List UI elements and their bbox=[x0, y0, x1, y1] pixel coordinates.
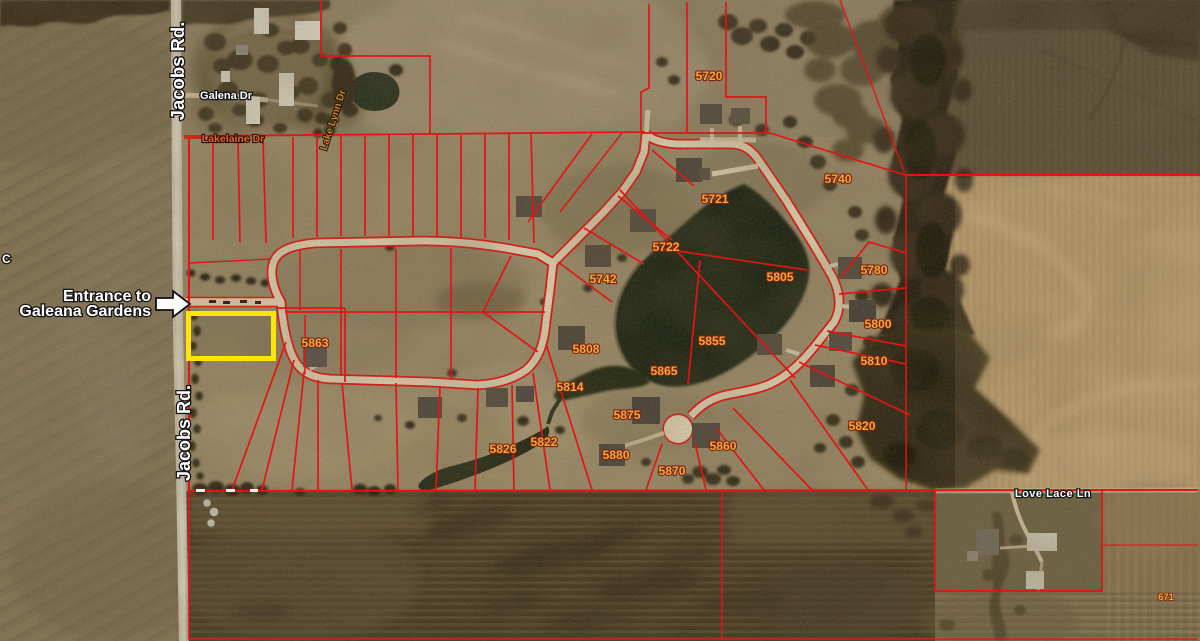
svg-text:Galeana Gardens: Galeana Gardens bbox=[19, 303, 151, 320]
svg-text:5722: 5722 bbox=[652, 240, 679, 254]
svg-text:C: C bbox=[2, 252, 11, 266]
svg-text:5865: 5865 bbox=[650, 364, 677, 378]
svg-text:5822: 5822 bbox=[530, 435, 557, 449]
svg-text:5875: 5875 bbox=[613, 408, 640, 422]
svg-text:Jacobs Rd.: Jacobs Rd. bbox=[174, 385, 194, 481]
svg-text:Lakelaine Dr: Lakelaine Dr bbox=[202, 133, 264, 145]
svg-text:5721: 5721 bbox=[701, 192, 728, 206]
svg-text:5820: 5820 bbox=[848, 419, 875, 433]
svg-text:5860: 5860 bbox=[709, 439, 736, 453]
svg-text:5855: 5855 bbox=[698, 334, 725, 348]
svg-text:5742: 5742 bbox=[589, 272, 616, 286]
svg-text:5870: 5870 bbox=[658, 464, 685, 478]
svg-text:Galena Dr: Galena Dr bbox=[200, 90, 253, 102]
svg-text:5826: 5826 bbox=[489, 442, 516, 456]
svg-text:5720: 5720 bbox=[695, 69, 722, 83]
svg-text:5863: 5863 bbox=[301, 336, 328, 350]
svg-text:5808: 5808 bbox=[572, 342, 599, 356]
svg-text:5740: 5740 bbox=[824, 172, 851, 186]
svg-text:5800: 5800 bbox=[864, 317, 891, 331]
svg-text:5805: 5805 bbox=[766, 270, 793, 284]
svg-text:Jacobs Rd.: Jacobs Rd. bbox=[167, 22, 188, 121]
svg-text:5780: 5780 bbox=[860, 263, 887, 277]
svg-text:5880: 5880 bbox=[602, 448, 629, 462]
svg-text:671: 671 bbox=[1158, 592, 1175, 603]
svg-text:Love Lace Ln: Love Lace Ln bbox=[1015, 488, 1091, 500]
svg-text:5810: 5810 bbox=[860, 354, 887, 368]
svg-text:5814: 5814 bbox=[556, 380, 583, 394]
